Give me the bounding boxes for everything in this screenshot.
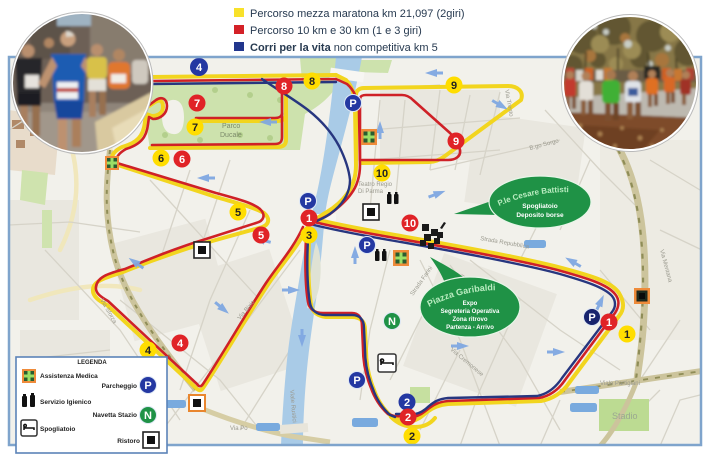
svg-text:P: P	[144, 380, 151, 392]
svg-text:4: 4	[177, 338, 184, 350]
svg-text:Parco: Parco	[222, 123, 240, 130]
svg-text:Servizio Igienico: Servizio Igienico	[40, 399, 91, 406]
svg-text:2: 2	[409, 431, 415, 443]
svg-text:P: P	[349, 98, 356, 110]
svg-text:Zona ritrovo: Zona ritrovo	[452, 317, 487, 323]
svg-text:N: N	[388, 316, 396, 328]
svg-text:Viale Partigiani: Viale Partigiani	[600, 381, 640, 387]
svg-text:10: 10	[404, 218, 416, 230]
svg-text:10: 10	[376, 168, 388, 180]
svg-text:6: 6	[158, 153, 164, 165]
svg-text:9: 9	[453, 136, 459, 148]
svg-text:Navetta Stazio: Navetta Stazio	[93, 412, 137, 419]
svg-text:Ristoro: Ristoro	[117, 438, 140, 445]
svg-text:1: 1	[606, 317, 612, 329]
svg-text:7: 7	[194, 98, 200, 110]
svg-text:P: P	[304, 196, 311, 208]
svg-text:9: 9	[451, 80, 457, 92]
svg-text:Parcheggio: Parcheggio	[102, 383, 137, 390]
svg-text:Segreteria Operativa: Segreteria Operativa	[441, 309, 500, 315]
svg-text:Teatro Regio: Teatro Regio	[358, 182, 393, 188]
svg-text:P: P	[588, 312, 595, 324]
svg-text:Spogliatoio: Spogliatoio	[522, 203, 557, 210]
svg-text:Ducale: Ducale	[220, 132, 242, 139]
svg-text:5: 5	[258, 230, 264, 242]
svg-text:Partenza - Arrivo: Partenza - Arrivo	[446, 325, 494, 331]
svg-text:5: 5	[235, 207, 241, 219]
svg-text:1: 1	[306, 213, 312, 225]
svg-text:Spogliatoio: Spogliatoio	[40, 426, 75, 433]
svg-text:LEGENDA: LEGENDA	[77, 360, 107, 366]
svg-text:8: 8	[309, 76, 315, 88]
svg-text:P: P	[353, 375, 360, 387]
svg-text:Di Parma: Di Parma	[358, 189, 384, 195]
svg-text:Assistenza Medica: Assistenza Medica	[40, 373, 98, 380]
svg-text:2: 2	[404, 397, 410, 409]
svg-text:Deposito borse: Deposito borse	[516, 212, 564, 219]
svg-text:1: 1	[624, 329, 630, 341]
svg-text:Via Po: Via Po	[230, 426, 248, 432]
svg-text:7: 7	[192, 122, 198, 134]
svg-text:4: 4	[145, 345, 152, 357]
svg-text:2: 2	[405, 412, 411, 424]
svg-text:Expo: Expo	[463, 301, 478, 307]
svg-text:8: 8	[281, 81, 287, 93]
svg-text:Stadio: Stadio	[612, 411, 638, 421]
svg-text:N: N	[144, 410, 152, 422]
svg-text:3: 3	[306, 230, 312, 242]
svg-text:4: 4	[196, 62, 203, 74]
svg-text:P: P	[363, 240, 370, 252]
svg-text:6: 6	[179, 154, 185, 166]
